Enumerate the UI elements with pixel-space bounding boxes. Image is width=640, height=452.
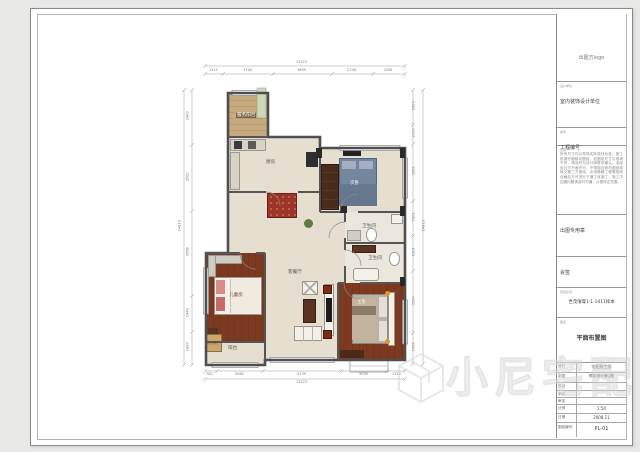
room-label-washer: 洗衣机 xyxy=(207,341,218,346)
design-unit-label: 设计单位 xyxy=(560,84,623,88)
row-label: 审核 xyxy=(557,391,577,397)
row-label: 比例 xyxy=(557,405,577,413)
dim-right-seg: 1664 xyxy=(412,339,416,355)
bedroom2-blanket xyxy=(339,184,377,206)
seal-value: 出图专用章 xyxy=(560,228,585,234)
project-name-label: 项目名称 xyxy=(560,290,623,294)
sofa-cushion-line xyxy=(312,326,313,341)
dim-top-total: 13223 xyxy=(296,61,307,65)
lamp-icon xyxy=(385,339,390,344)
project-no-section: 编号 工程编号 xyxy=(557,128,626,146)
kitchen-side-counter xyxy=(230,152,240,190)
project-name-section: 项目名称 世茂璀璨1-1-1011样本 xyxy=(557,288,626,318)
drawing-name-section: 图名 平面布置图 xyxy=(557,318,626,363)
logo-section: 出图方logo xyxy=(557,14,626,82)
title-block: 出图方logo 设计单位 室内装饰设计单位 编号 工程编号 注意 所有尺寸均以现… xyxy=(556,14,626,438)
kids-desk xyxy=(208,255,216,277)
bedroom2-tv-cabinet xyxy=(343,149,361,156)
sink-icon xyxy=(248,141,256,149)
dim-top-seg: 2738 xyxy=(347,69,356,73)
table-row: 日期 2008.11 xyxy=(557,414,626,423)
row-value xyxy=(577,398,626,404)
room-label-bedroom2: 次卧 xyxy=(350,181,359,186)
room-label-bath1: 卫生间 xyxy=(362,224,376,229)
room-label-balcony: 阳台 xyxy=(228,346,237,351)
dim-bottom-seg: 3062 xyxy=(235,373,244,377)
dim-left-seg: 4568 xyxy=(186,244,190,260)
row-value: 宅配施工图 xyxy=(577,363,626,372)
coffee-table xyxy=(303,299,316,323)
stool xyxy=(323,330,332,339)
drawing-number: PL-01 xyxy=(577,423,626,437)
dim-bottom-seg: 782 xyxy=(206,373,213,377)
sofa-cushion-line xyxy=(303,326,304,341)
notes-text: 所有尺寸均以现场实际放线为准，施工前请仔细核对图纸，如图纸尺寸与现场不符，请及时… xyxy=(560,152,623,184)
project-name-value: 世茂璀璨1-1-1011样本 xyxy=(560,300,623,306)
row-value: 预算/报价确认图 xyxy=(577,373,626,382)
drawing-name-label: 图名 xyxy=(560,320,623,324)
bedroom2-pillow xyxy=(342,161,356,169)
dim-left-seg: 3562 xyxy=(186,169,190,185)
dim-bottom-seg: 3030 xyxy=(359,373,368,377)
row-label: 制图 xyxy=(557,373,577,382)
kids-pillow xyxy=(216,297,225,311)
dim-right-seg: 3334 xyxy=(412,293,416,309)
dim-left-seg: 1800 xyxy=(186,339,190,355)
bedroom2-wardrobe xyxy=(321,164,339,210)
bedroom2-pillow xyxy=(359,161,373,169)
master-pillow xyxy=(379,297,387,317)
project-no-label: 编号 xyxy=(560,130,623,134)
dim-top-seg: 3895 xyxy=(297,69,306,73)
dim-right-seg: 1033 xyxy=(412,125,416,141)
room-label-master: 主卧 xyxy=(357,300,366,305)
master-pillow xyxy=(379,321,387,341)
countersign-label: 会签 xyxy=(560,270,570,276)
design-unit-section: 设计单位 室内装饰设计单位 xyxy=(557,82,626,128)
table-row: 制图 预算/报价确认图 xyxy=(557,373,626,383)
dim-bottom-seg: 1210 xyxy=(392,373,401,377)
dim-right-seg: 1899 xyxy=(412,98,416,114)
row-value xyxy=(577,383,626,390)
table-row: 图纸编号 PL-01 xyxy=(557,423,626,437)
bath1-vanity xyxy=(347,230,361,241)
toilet-icon xyxy=(389,252,400,266)
toilet-icon xyxy=(366,228,377,242)
dim-left-total: 14813 xyxy=(178,218,182,234)
drawing-name-value: 平面布置图 xyxy=(560,336,623,342)
table-row: 比例 1:50 xyxy=(557,405,626,414)
row-value xyxy=(577,391,626,397)
room-label-kids: 儿童房 xyxy=(229,293,243,298)
room-label-living: 客餐厅 xyxy=(288,270,302,275)
room-label-service-balcony: 服务阳台 xyxy=(236,113,256,118)
dim-left-seg: 1940 xyxy=(186,305,190,321)
dim-right-total: 14813 xyxy=(422,218,426,234)
design-unit-value: 室内装饰设计单位 xyxy=(560,99,600,105)
plant-icon xyxy=(304,219,313,228)
tv-icon xyxy=(326,298,332,322)
table-row: 审定 xyxy=(557,398,626,405)
table-row: 校对 xyxy=(557,383,626,391)
sofa xyxy=(294,326,322,341)
dim-right-seg: 3081 xyxy=(412,163,416,179)
lamp-icon xyxy=(385,291,390,296)
notes-section: 注意 所有尺寸均以现场实际放线为准，施工前请仔细核对图纸，如图纸尺寸与现场不符，… xyxy=(557,146,626,215)
fridge-icon xyxy=(306,152,318,167)
bath1-shelf xyxy=(391,214,403,224)
bath2-vanity xyxy=(352,245,376,253)
row-label: 日期 xyxy=(557,414,577,422)
company-logo: 出图方logo xyxy=(579,55,605,61)
dim-top-seg: 3318 xyxy=(243,69,252,73)
seal-section: 出图专用章 xyxy=(557,215,626,257)
dim-bottom-seg: 5139 xyxy=(297,373,306,377)
dim-bottom-total: 13223 xyxy=(296,381,307,385)
stove-icon xyxy=(234,141,242,149)
row-label: 图纸编号 xyxy=(557,423,577,437)
stool xyxy=(323,285,332,294)
dim-left-seg: 2943 xyxy=(186,108,190,124)
row-label: 校对 xyxy=(557,383,577,390)
armchair xyxy=(302,281,318,295)
entry-rug xyxy=(267,193,297,218)
bathtub-icon xyxy=(353,268,379,281)
row-value: 2008.11 xyxy=(577,414,626,422)
row-value: 1:50 xyxy=(577,405,626,413)
dim-right-seg: 1901 xyxy=(412,209,416,225)
dim-right-seg: 1901 xyxy=(412,244,416,260)
table-row: 审核 xyxy=(557,391,626,398)
dim-top-seg: 2061 xyxy=(384,69,393,73)
kids-pillow xyxy=(216,280,225,294)
room-label-bath2: 卫生间 xyxy=(368,256,382,261)
master-throw xyxy=(352,306,376,315)
master-headboard xyxy=(388,292,395,346)
floor-plan: 服务阳台 厨房 次卧 卫生间 卫生间 客餐厅 儿童房 阳台 洗衣机 主卧 132… xyxy=(0,0,640,452)
room-label-kitchen: 厨房 xyxy=(266,160,275,165)
master-dresser xyxy=(340,350,364,358)
table-row: 设计 宅配施工图 xyxy=(557,363,626,373)
row-label: 审定 xyxy=(557,398,577,404)
row-label: 设计 xyxy=(557,363,577,372)
dim-top-seg: 1211 xyxy=(209,69,218,73)
countersign-section: 会签 xyxy=(557,257,626,288)
